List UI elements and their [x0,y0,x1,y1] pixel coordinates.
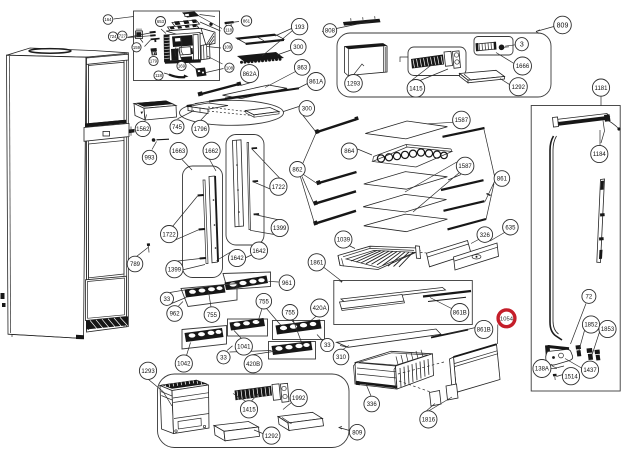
svg-text:1853: 1853 [601,327,615,333]
svg-text:1992: 1992 [292,396,306,402]
svg-text:1514: 1514 [564,374,578,380]
svg-text:3: 3 [520,42,524,49]
svg-text:861: 861 [497,177,508,183]
svg-text:33: 33 [324,343,331,349]
svg-text:863: 863 [297,66,308,72]
svg-text:962: 962 [170,312,181,318]
svg-text:1562: 1562 [136,127,150,133]
svg-text:300: 300 [293,45,304,51]
svg-text:108: 108 [226,65,234,70]
svg-text:724: 724 [109,34,117,39]
svg-text:1663: 1663 [172,149,186,155]
svg-text:1039: 1039 [337,238,351,244]
svg-text:755: 755 [207,313,218,319]
svg-text:72: 72 [586,295,593,301]
svg-text:1181: 1181 [595,86,609,92]
svg-text:809: 809 [352,430,363,436]
svg-text:1184: 1184 [593,152,607,158]
svg-text:1042: 1042 [177,362,191,368]
svg-text:808: 808 [325,29,336,35]
svg-text:193: 193 [295,25,306,31]
svg-text:653: 653 [157,19,165,24]
svg-text:1054: 1054 [500,316,514,322]
svg-text:1292: 1292 [512,85,526,91]
svg-text:862: 862 [292,168,303,174]
svg-text:755: 755 [259,299,270,305]
svg-text:1722: 1722 [162,232,176,238]
svg-text:1587: 1587 [455,118,469,124]
svg-text:118: 118 [155,73,162,78]
svg-text:1796: 1796 [194,127,208,133]
svg-text:861: 861 [243,19,251,24]
svg-text:336: 336 [367,402,378,408]
svg-text:1642: 1642 [252,249,266,255]
svg-text:164: 164 [104,17,112,22]
svg-text:1642: 1642 [230,256,244,262]
svg-text:1293: 1293 [347,82,361,88]
svg-text:109: 109 [224,45,232,50]
svg-text:169: 169 [178,64,186,69]
svg-text:1861: 1861 [310,261,324,267]
svg-text:861B: 861B [453,311,467,317]
svg-text:326: 326 [480,233,491,239]
svg-text:1399: 1399 [168,267,182,273]
svg-text:1722: 1722 [272,185,286,191]
svg-text:1292: 1292 [265,434,279,440]
svg-text:300: 300 [302,107,313,113]
svg-text:1399: 1399 [273,226,287,232]
svg-text:864: 864 [344,149,355,155]
svg-text:1415: 1415 [242,408,256,414]
svg-text:745: 745 [172,125,183,131]
svg-text:789: 789 [130,262,141,268]
svg-text:635: 635 [505,225,516,231]
svg-text:1437: 1437 [583,368,597,374]
svg-text:809: 809 [557,22,569,29]
svg-text:33: 33 [220,356,227,362]
svg-text:420A: 420A [313,306,327,312]
svg-text:159: 159 [133,45,141,50]
svg-text:310: 310 [336,355,347,361]
svg-text:33: 33 [164,297,171,303]
svg-text:1041: 1041 [237,345,251,351]
svg-text:138A: 138A [535,367,549,373]
svg-text:1666: 1666 [516,64,530,70]
svg-text:1293: 1293 [141,369,155,375]
svg-text:1415: 1415 [409,87,423,93]
svg-text:1816: 1816 [422,418,436,424]
svg-text:727: 727 [119,33,127,38]
svg-text:861B: 861B [477,328,491,334]
svg-text:755: 755 [285,311,296,317]
svg-text:862A: 862A [243,72,257,78]
svg-text:961: 961 [282,281,293,287]
svg-text:118: 118 [225,27,232,32]
svg-text:1852: 1852 [584,323,598,329]
svg-text:861A: 861A [309,80,323,86]
svg-text:1662: 1662 [205,149,219,155]
svg-text:993: 993 [144,156,155,162]
svg-text:179: 179 [150,59,158,64]
svg-text:420B: 420B [246,362,260,368]
svg-text:1587: 1587 [458,164,472,170]
